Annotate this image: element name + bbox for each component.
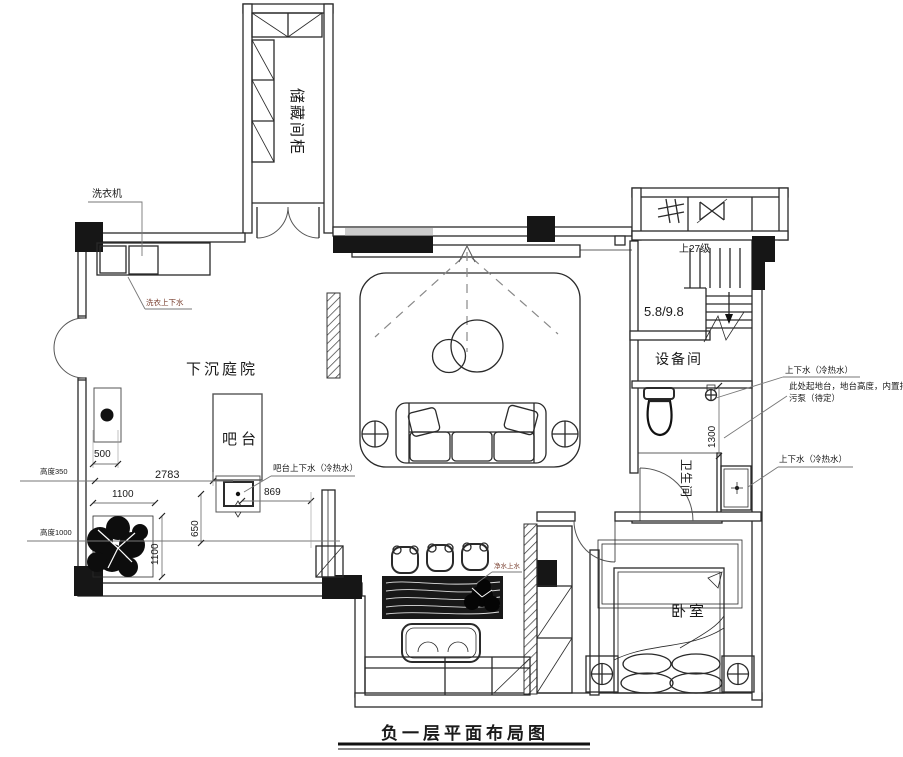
stairs xyxy=(684,248,752,342)
drawing-title: 负一层平面布局图 xyxy=(338,719,592,744)
annotation-water-hot-cold-2: 上下水（冷热水） xyxy=(779,455,847,465)
courtyard-window xyxy=(316,490,343,577)
room-label-courtyard: 下沉庭院 xyxy=(186,361,258,378)
annotation-laundry-water: 洗衣上下水 xyxy=(146,299,184,308)
annotation-water-hot-cold-1: 上下水（冷热水） xyxy=(785,366,853,376)
annotation-level-mark: 5.8/9.8 xyxy=(644,305,684,320)
annotation-platform-note-2: 污泵（待定） xyxy=(789,394,840,404)
annotation-stairs-up: 上27级 xyxy=(679,244,710,256)
dim-2783: 2783 xyxy=(155,469,179,482)
annotation-purified-water: 净水上水 xyxy=(494,563,520,570)
bench xyxy=(402,624,480,662)
side-table-left xyxy=(362,421,388,447)
projection-dashes xyxy=(375,246,558,352)
annotation-washing-machine: 洗衣机 xyxy=(92,189,122,201)
dim-500: 500 xyxy=(94,449,111,461)
dining-chairs xyxy=(392,543,488,573)
annotation-bar-water: 吧台上下水（冷热水） xyxy=(273,464,358,474)
dim-height-1000: 高度1000 xyxy=(40,529,72,538)
room-label-bar: 吧台 xyxy=(222,431,260,448)
bar-counter xyxy=(213,394,262,517)
washer-counter xyxy=(97,243,210,275)
bed xyxy=(614,568,724,693)
storage-double-door xyxy=(257,207,319,238)
tree xyxy=(87,516,153,577)
vent-room-symbols xyxy=(658,199,727,223)
grille-hash-icon xyxy=(658,199,684,223)
floor-drain-planter xyxy=(94,388,121,442)
room-label-storage: 储藏间柜 xyxy=(288,88,305,156)
room-label-equipment: 设备间 xyxy=(655,351,703,367)
living-room xyxy=(360,246,580,467)
plan-drawing xyxy=(0,0,903,757)
nightstand-right xyxy=(722,656,754,692)
dining-area xyxy=(382,543,503,662)
stair-direction-arrow xyxy=(725,292,733,324)
dim-650: 650 xyxy=(190,520,202,537)
toilet xyxy=(644,388,674,435)
rug xyxy=(360,273,580,467)
walls xyxy=(78,188,788,707)
dim-1300: 1300 xyxy=(707,426,719,448)
dim-869: 869 xyxy=(264,487,281,499)
damper-valve-icon xyxy=(697,199,727,223)
vanity-sink xyxy=(721,466,751,510)
bedroom-rug xyxy=(598,540,742,608)
courtyard-double-door xyxy=(54,316,86,380)
room-label-bathroom: 卫生间 xyxy=(678,459,692,498)
floor-plan: 储藏间柜 下沉庭院 吧台 设备间 卫生间 卧室 洗衣机 洗衣上下水 吧台上下水（… xyxy=(0,0,903,757)
bedroom xyxy=(574,521,754,693)
bar-sink xyxy=(216,476,260,517)
annotation-platform-note-1: 此处起地台，地台高度，内置排 xyxy=(789,382,903,392)
sofa-pillow xyxy=(503,405,538,436)
title-underline xyxy=(338,744,590,749)
coffee-table xyxy=(433,320,504,373)
sofa xyxy=(396,403,546,463)
dim-height-350: 高度350 xyxy=(40,468,68,477)
dim-1100-h: 1100 xyxy=(112,489,134,501)
dim-1100-v: 1100 xyxy=(150,543,162,565)
room-label-bedroom: 卧室 xyxy=(671,603,707,620)
side-table-right xyxy=(552,421,578,447)
closet-shaft xyxy=(537,526,572,693)
